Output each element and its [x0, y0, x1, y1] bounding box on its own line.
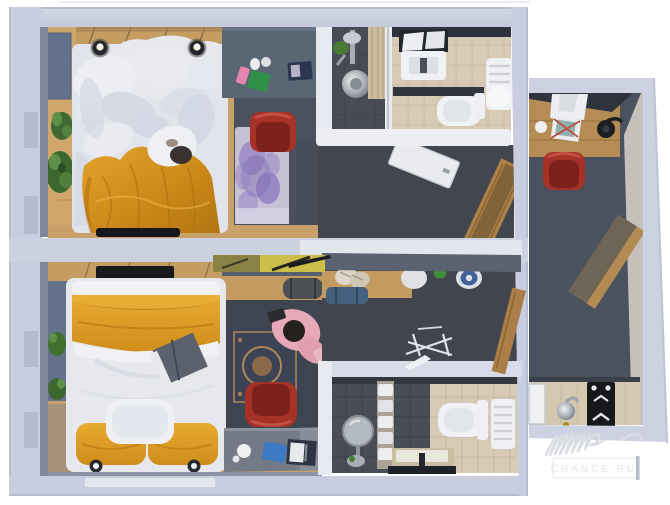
svg-text:CHANCE RU: CHANCE RU: [551, 464, 637, 475]
